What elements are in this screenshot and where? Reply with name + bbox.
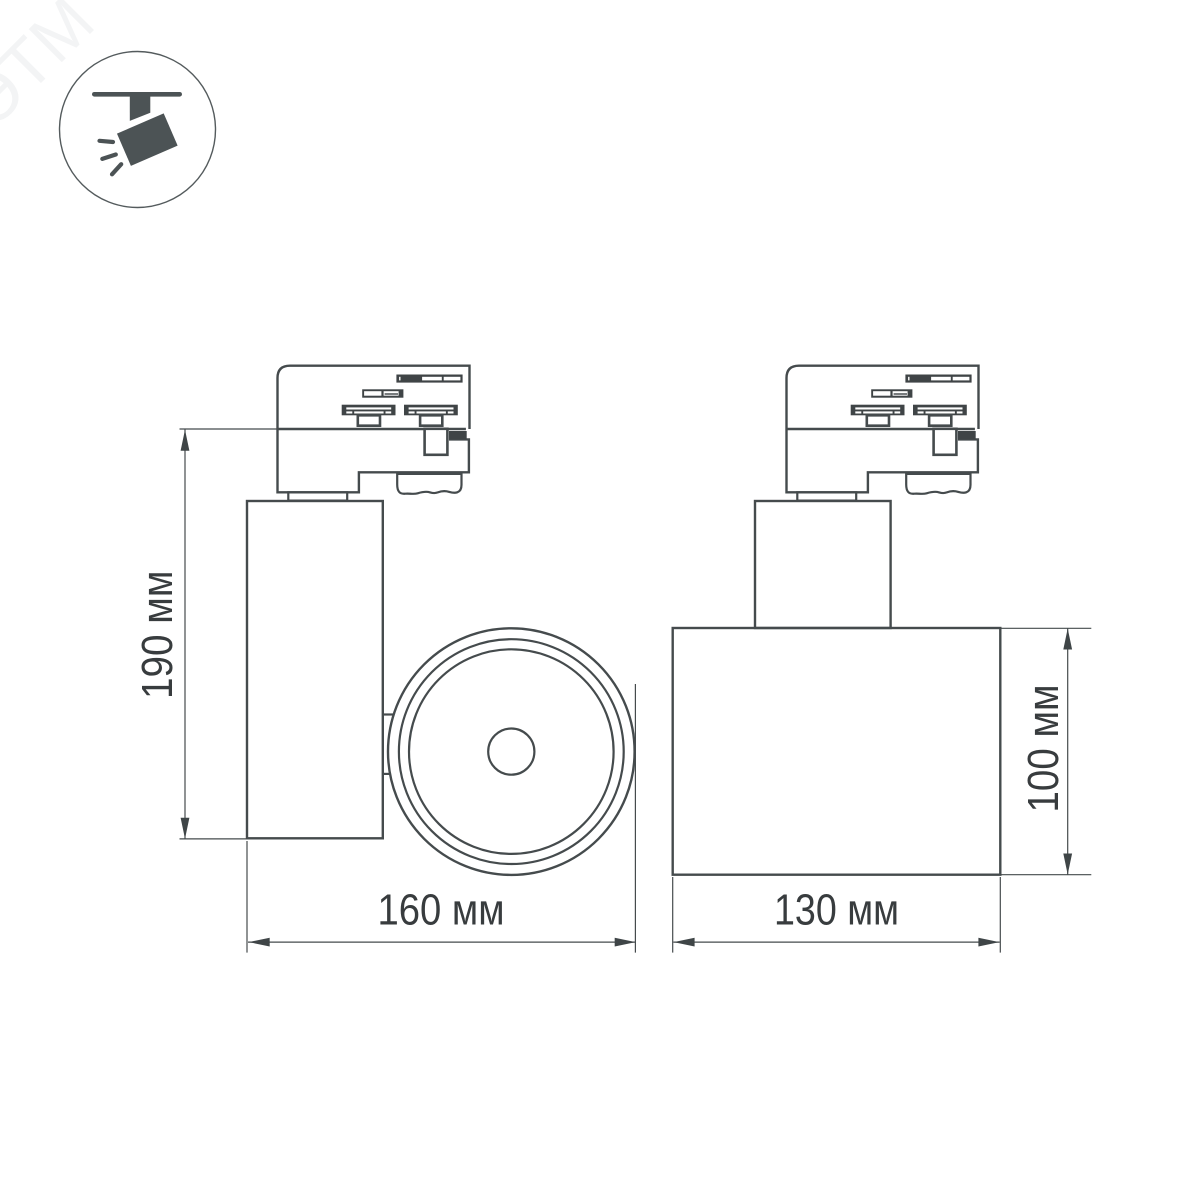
svg-text:160 мм: 160 мм	[378, 887, 505, 935]
svg-text:100 мм: 100 мм	[1020, 685, 1068, 813]
svg-text:130 мм: 130 мм	[774, 887, 899, 935]
svg-text:190 мм: 190 мм	[134, 571, 182, 700]
